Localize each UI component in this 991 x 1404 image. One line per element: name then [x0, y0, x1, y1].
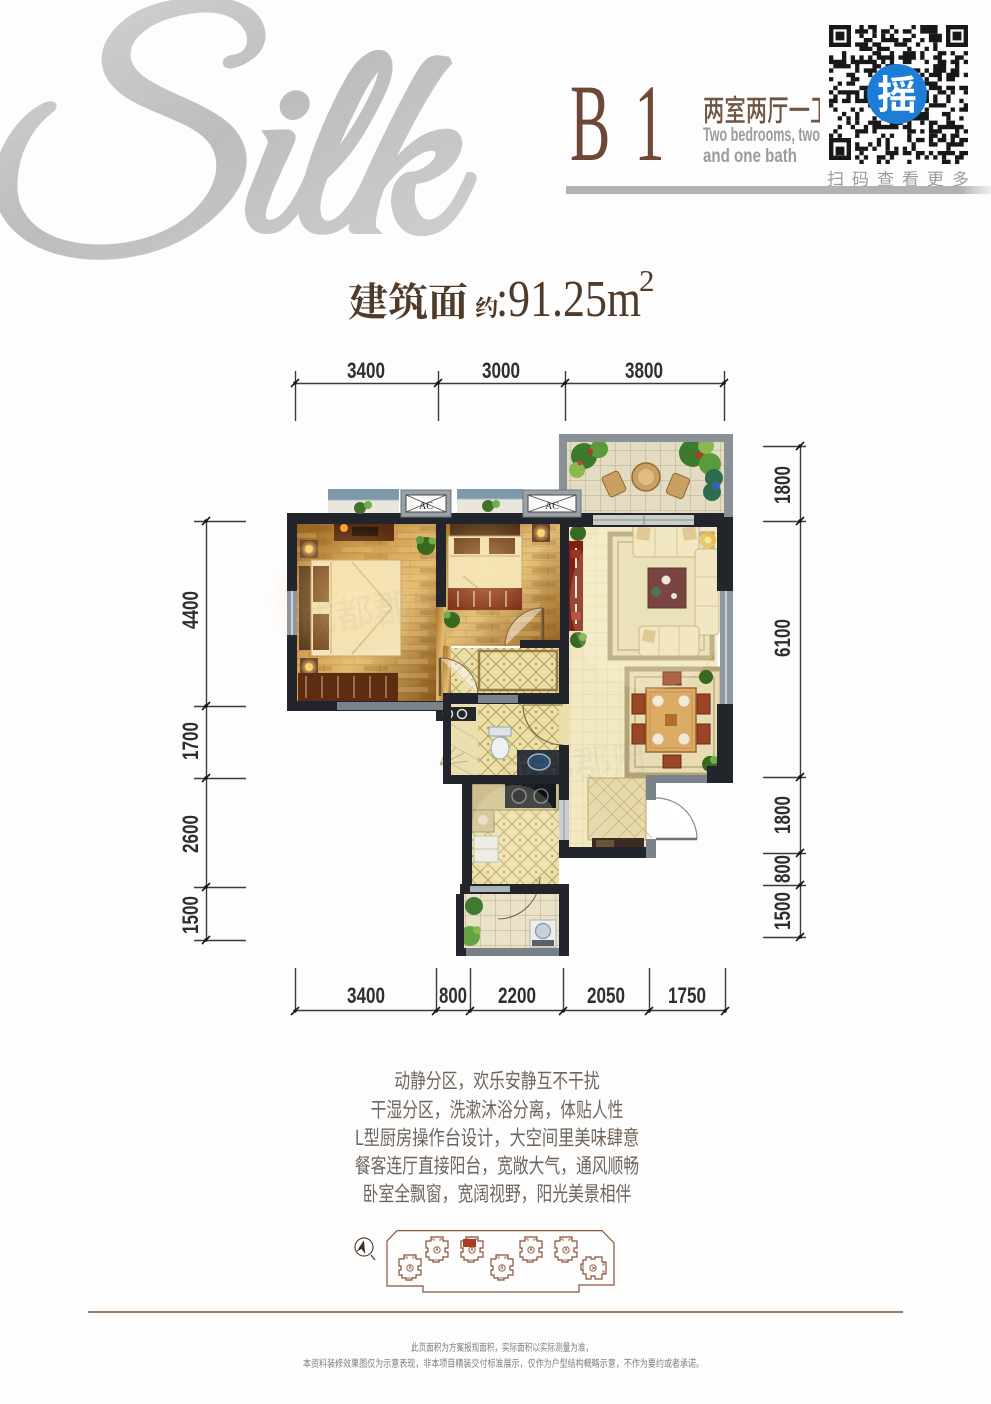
svg-text:2: 2	[639, 263, 655, 298]
svg-text:1800: 1800	[770, 796, 795, 834]
svg-text:3400: 3400	[347, 358, 385, 383]
svg-text::91.25m: :91.25m	[496, 271, 641, 328]
svg-text:4400: 4400	[178, 591, 203, 629]
svg-text:1500: 1500	[770, 892, 795, 930]
svg-text:3400: 3400	[347, 983, 385, 1008]
svg-text:2600: 2600	[178, 815, 203, 853]
svg-text:1800: 1800	[770, 466, 795, 504]
svg-text:3000: 3000	[482, 358, 520, 383]
svg-text:2050: 2050	[587, 983, 625, 1008]
svg-text:AC: AC	[545, 501, 559, 512]
svg-text:800: 800	[439, 983, 467, 1008]
svg-text:6100: 6100	[770, 619, 795, 657]
svg-text:2200: 2200	[498, 983, 536, 1008]
svg-text:3800: 3800	[625, 358, 663, 383]
svg-text:800: 800	[770, 855, 795, 883]
svg-text:AC: AC	[419, 501, 433, 512]
svg-text:1500: 1500	[178, 896, 203, 934]
svg-text:1750: 1750	[668, 983, 706, 1008]
svg-text:1700: 1700	[178, 722, 203, 760]
